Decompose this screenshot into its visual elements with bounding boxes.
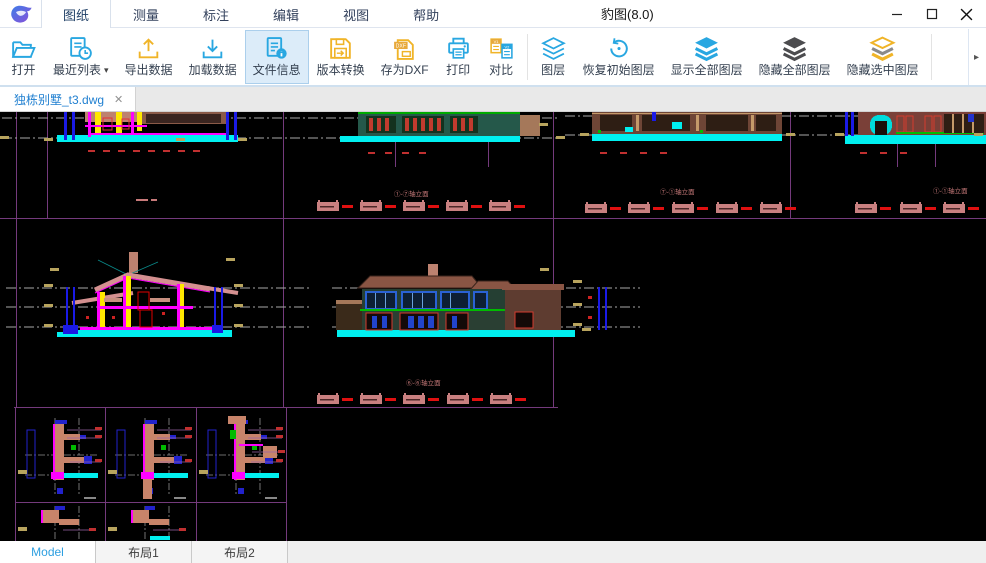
ribbon-toolbar: 打开 最近列表 ▾ 导出数据 加载数据 bbox=[0, 28, 986, 87]
save-as-dxf-button[interactable]: DXF 存为DXF bbox=[373, 30, 437, 84]
layout-tab-bar: Model 布局1 布局2 bbox=[0, 541, 986, 563]
document-tab-bar: 独栋别墅_t3.dwg ✕ bbox=[0, 87, 986, 112]
menu-tab-measure[interactable]: 测量 bbox=[111, 0, 181, 28]
svg-text:DXF: DXF bbox=[396, 43, 406, 49]
load-data-label: 加载数据 bbox=[189, 63, 237, 78]
restore-initial-layers-button[interactable]: 恢复初始图层 bbox=[575, 30, 663, 84]
sheet-title-4: ⑥-⑥轴立面 bbox=[406, 378, 441, 387]
layout-tab-model[interactable]: Model bbox=[0, 541, 96, 563]
app-logo-leopard-icon bbox=[8, 3, 35, 25]
svg-text:V1: V1 bbox=[493, 39, 498, 44]
restore-initial-layers-label: 恢复初始图层 bbox=[583, 63, 655, 78]
menu-tab-annotate[interactable]: 标注 bbox=[181, 0, 251, 28]
tab-close-icon[interactable]: ✕ bbox=[114, 93, 123, 106]
open-folder-icon bbox=[10, 35, 37, 62]
window-controls bbox=[879, 0, 984, 28]
wall-detail-cells bbox=[18, 416, 285, 541]
print-button[interactable]: 打印 bbox=[437, 30, 480, 84]
open-button[interactable]: 打开 bbox=[2, 30, 45, 84]
document-tab-active[interactable]: 独栋别墅_t3.dwg ✕ bbox=[0, 87, 136, 111]
top-elevation-far-right bbox=[845, 112, 986, 136]
dropdown-caret-icon: ▾ bbox=[104, 63, 109, 78]
export-arrow-icon bbox=[135, 35, 162, 62]
document-tab-label: 独栋别墅_t3.dwg bbox=[14, 91, 104, 108]
maximize-icon bbox=[926, 8, 938, 20]
dxf-file-icon: DXF bbox=[391, 35, 418, 62]
hide-all-layers-button[interactable]: 隐藏全部图层 bbox=[751, 30, 839, 84]
svg-text:V2: V2 bbox=[504, 44, 509, 49]
top-elevation-center-left bbox=[358, 112, 540, 136]
file-info-label: 文件信息 bbox=[253, 63, 301, 78]
top-elevation-center-right bbox=[592, 112, 782, 134]
window-title: 豹图(8.0) bbox=[601, 0, 654, 28]
sheet-title-2: ⑦-①轴立面 bbox=[660, 187, 695, 196]
menu-tab-drawing[interactable]: 图纸 bbox=[41, 0, 111, 28]
version-convert-floppy-icon bbox=[327, 35, 354, 62]
hide-selected-layers-label: 隐藏选中图层 bbox=[847, 63, 919, 78]
layers-filled-dark-icon bbox=[781, 35, 808, 62]
recent-list-icon bbox=[67, 35, 94, 62]
layers-label: 图层 bbox=[541, 63, 565, 78]
menu-tab-help[interactable]: 帮助 bbox=[391, 0, 461, 28]
sheet-title-3: ①-①轴立面 bbox=[933, 186, 968, 195]
layers-outline-icon bbox=[540, 35, 567, 62]
expand-arrow-icon: ▸ bbox=[974, 52, 979, 63]
version-convert-label: 版本转换 bbox=[317, 63, 365, 78]
file-info-button[interactable]: 文件信息 bbox=[245, 30, 309, 84]
layers-mixed-yellow-icon bbox=[869, 35, 896, 62]
cad-drawing-graphics: ①-⑦轴立面 ⑦-①轴立面 ①-①轴立面 ⑥-⑥轴立面 bbox=[0, 112, 986, 541]
toolbar-separator bbox=[931, 34, 932, 80]
recent-list-text: 最近列表 bbox=[53, 63, 101, 78]
toolbar-separator bbox=[527, 34, 528, 80]
compare-label: 对比 bbox=[489, 63, 513, 78]
drawing-canvas[interactable]: ①-⑦轴立面 ⑦-①轴立面 ①-①轴立面 ⑥-⑥轴立面 bbox=[0, 112, 986, 541]
show-all-layers-label: 显示全部图层 bbox=[671, 63, 743, 78]
menu-tabs: 图纸 测量 标注 编辑 视图 帮助 bbox=[41, 0, 461, 27]
load-arrow-icon bbox=[199, 35, 226, 62]
open-label: 打开 bbox=[11, 63, 35, 78]
hide-all-layers-label: 隐藏全部图层 bbox=[759, 63, 831, 78]
show-all-layers-button[interactable]: 显示全部图层 bbox=[663, 30, 751, 84]
save-as-dxf-label: 存为DXF bbox=[381, 63, 429, 78]
layers-button[interactable]: 图层 bbox=[532, 30, 575, 84]
sheet-title-1: ①-⑦轴立面 bbox=[394, 189, 429, 198]
layout-tab-2[interactable]: 布局2 bbox=[192, 541, 288, 563]
close-icon bbox=[960, 8, 973, 21]
recent-list-button[interactable]: 最近列表 ▾ bbox=[45, 30, 117, 84]
compare-button[interactable]: V1 V2 对比 bbox=[480, 30, 523, 84]
minimize-icon bbox=[891, 8, 903, 20]
export-data-button[interactable]: 导出数据 bbox=[117, 30, 181, 84]
print-label: 打印 bbox=[446, 63, 470, 78]
layers-filled-blue-icon bbox=[693, 35, 720, 62]
hide-selected-layers-button[interactable]: 隐藏选中图层 bbox=[839, 30, 927, 84]
red-dimension-ticks bbox=[88, 150, 907, 154]
layout-tab-1[interactable]: 布局1 bbox=[96, 541, 192, 563]
minimize-button[interactable] bbox=[879, 0, 914, 28]
titlebar: 图纸 测量 标注 编辑 视图 帮助 豹图(8.0) bbox=[0, 0, 986, 28]
load-data-button[interactable]: 加载数据 bbox=[181, 30, 245, 84]
building-elevation-drawing bbox=[336, 264, 607, 331]
maximize-button[interactable] bbox=[914, 0, 949, 28]
version-convert-button[interactable]: 版本转换 bbox=[309, 30, 373, 84]
file-info-icon bbox=[263, 35, 290, 62]
printer-icon bbox=[445, 35, 472, 62]
export-data-label: 导出数据 bbox=[125, 63, 173, 78]
compare-docs-icon: V1 V2 bbox=[488, 35, 515, 62]
menu-tab-view[interactable]: 视图 bbox=[321, 0, 391, 28]
ribbon-expand-button[interactable]: ▸ bbox=[968, 29, 984, 85]
restore-circular-arrow-icon bbox=[605, 35, 632, 62]
recent-list-label: 最近列表 ▾ bbox=[53, 63, 109, 78]
close-button[interactable] bbox=[949, 0, 984, 28]
building-section-drawing bbox=[44, 252, 243, 334]
menu-tab-edit[interactable]: 编辑 bbox=[251, 0, 321, 28]
